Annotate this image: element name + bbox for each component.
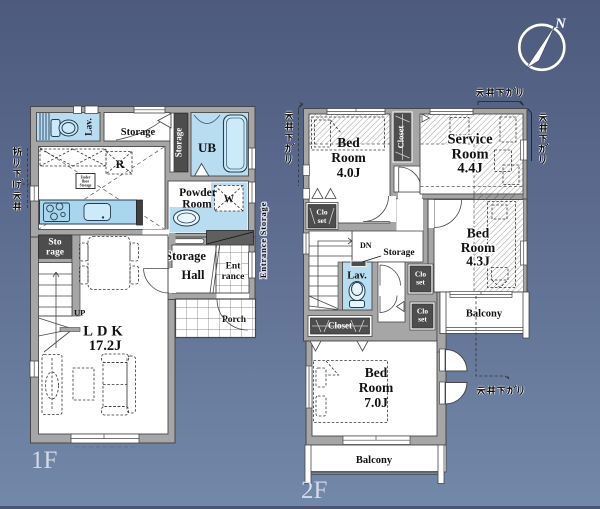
svg-text:W: W	[224, 195, 234, 206]
svg-text:Closet: Closet	[328, 321, 352, 331]
svg-text:set: set	[418, 315, 427, 324]
svg-text:Lav.: Lav.	[347, 271, 367, 282]
svg-text:7.0J: 7.0J	[364, 395, 388, 410]
svg-text:N: N	[554, 16, 567, 32]
svg-text:Storage: Storage	[383, 248, 414, 258]
svg-text:DN: DN	[360, 241, 372, 250]
svg-text:1F: 1F	[31, 447, 57, 474]
svg-text:UB: UB	[198, 140, 216, 155]
svg-text:Storage: Storage	[80, 184, 92, 188]
svg-text:4.3J: 4.3J	[466, 254, 490, 269]
svg-text:17.2J: 17.2J	[89, 338, 122, 354]
svg-text:Balcony: Balcony	[466, 309, 503, 320]
svg-text:Service: Service	[447, 132, 493, 148]
svg-text:Room: Room	[331, 150, 366, 165]
svg-text:Powder: Powder	[179, 187, 217, 199]
svg-text:Bed: Bed	[337, 135, 360, 150]
svg-text:rance: rance	[222, 272, 245, 282]
svg-text:Entrance Storage: Entrance Storage	[258, 202, 268, 278]
svg-text:rage: rage	[46, 248, 64, 258]
svg-text:Bed: Bed	[467, 226, 490, 241]
svg-text:2F: 2F	[301, 477, 327, 504]
svg-text:Lav.: Lav.	[85, 118, 95, 136]
svg-text:Bed: Bed	[365, 365, 388, 380]
svg-text:4.0J: 4.0J	[337, 165, 361, 180]
svg-text:Closet: Closet	[396, 126, 406, 149]
svg-text:UP: UP	[74, 308, 85, 318]
svg-text:Ent: Ent	[226, 262, 242, 272]
svg-text:Room: Room	[359, 380, 394, 395]
svg-text:Hall: Hall	[182, 268, 205, 282]
svg-text:set: set	[416, 278, 425, 287]
svg-text:Balcony: Balcony	[356, 455, 393, 466]
svg-text:Room: Room	[182, 199, 212, 211]
svg-text:Storage: Storage	[165, 249, 206, 263]
svg-text:R: R	[116, 157, 125, 171]
svg-text:set: set	[318, 216, 327, 225]
svg-text:Sto: Sto	[48, 238, 61, 248]
svg-text:Storage: Storage	[121, 127, 156, 138]
svg-text:4.4J: 4.4J	[457, 161, 482, 177]
svg-text:Storage: Storage	[174, 128, 184, 158]
